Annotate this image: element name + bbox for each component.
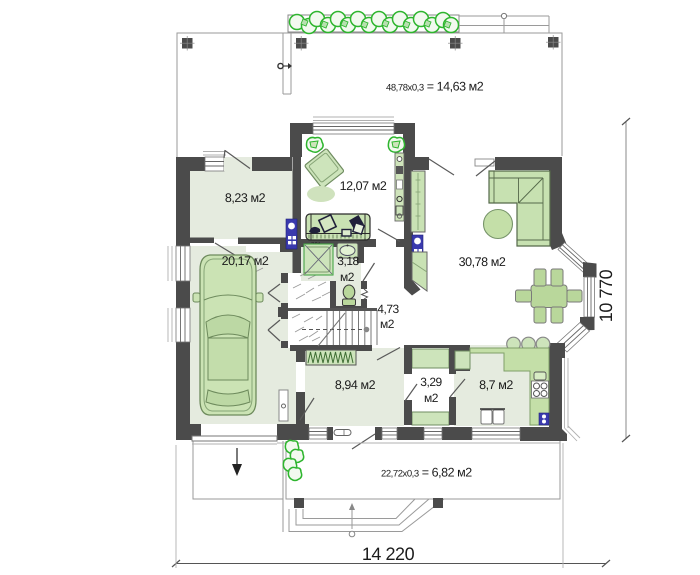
svg-text:м2: м2 — [380, 317, 395, 331]
svg-text:м2: м2 — [340, 270, 355, 284]
svg-text:48,78x0,3 = 14,63 м2: 48,78x0,3 = 14,63 м2 — [386, 80, 484, 94]
svg-text:8,23 м2: 8,23 м2 — [225, 191, 266, 205]
svg-text:22,72x0,3 = 6,82 м2: 22,72x0,3 = 6,82 м2 — [381, 466, 472, 480]
svg-text:12,07 м2: 12,07 м2 — [340, 179, 387, 193]
svg-text:14 220: 14 220 — [362, 544, 415, 564]
svg-text:3,18: 3,18 — [337, 254, 359, 268]
svg-text:4,73: 4,73 — [377, 302, 399, 316]
svg-text:10 770: 10 770 — [596, 269, 616, 322]
svg-text:30,78 м2: 30,78 м2 — [459, 255, 506, 269]
svg-text:8,94 м2: 8,94 м2 — [335, 378, 376, 392]
svg-text:8,7 м2: 8,7 м2 — [479, 378, 513, 392]
svg-text:3,29: 3,29 — [420, 375, 442, 389]
svg-text:м2: м2 — [424, 391, 439, 405]
svg-text:20,17 м2: 20,17 м2 — [222, 254, 269, 268]
